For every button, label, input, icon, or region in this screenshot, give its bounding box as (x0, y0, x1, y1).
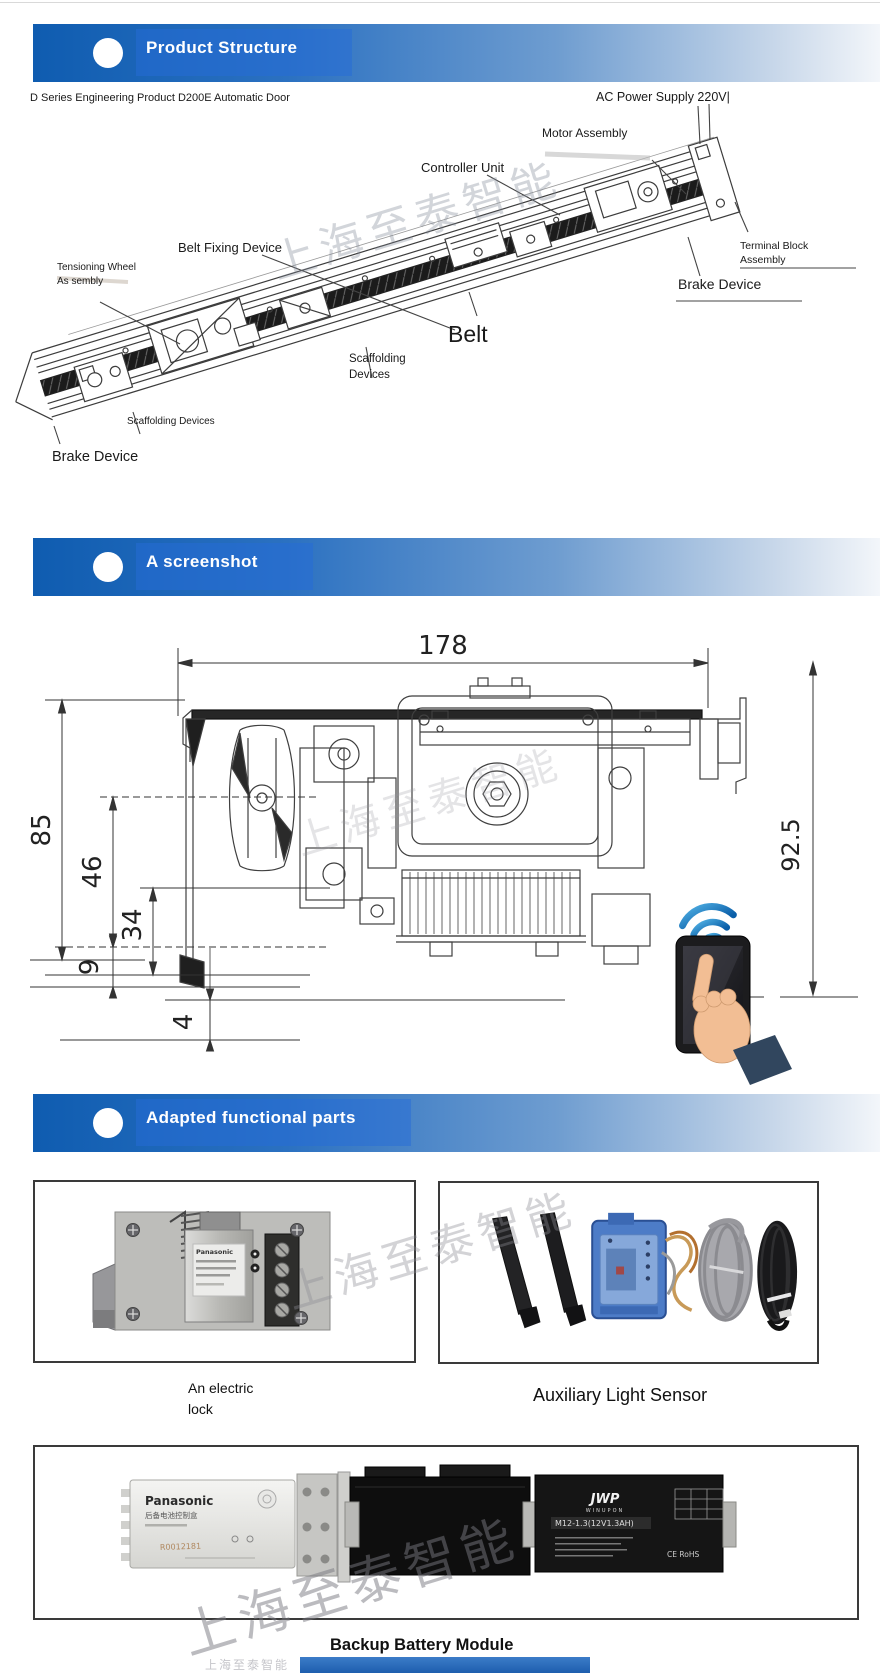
section-title: Product Structure (136, 29, 352, 76)
top-divider (0, 2, 880, 3)
label-terminal-block-2: Assembly (740, 254, 786, 267)
section-title: A screenshot (136, 543, 313, 590)
label-motor-assembly: Motor Assembly (542, 126, 627, 141)
section-banner-screenshot: A screenshot (33, 538, 880, 596)
lock-brand-text: Panasonic (196, 1248, 233, 1256)
caption-line: lock (188, 1399, 253, 1420)
dimension-drawing: 178 85 46 34 9 4 92.5 (0, 598, 880, 1085)
dim-4: 4 (169, 1014, 199, 1031)
electric-lock-caption: An electric lock (188, 1378, 253, 1420)
label-belt: Belt (448, 320, 488, 349)
section-banner-product-structure: Product Structure (33, 24, 880, 82)
battery-logo-sub-text: WINUPON (586, 1508, 625, 1514)
label-terminal-block: Terminal Block (740, 240, 808, 253)
dim-92-5: 92.5 (777, 818, 805, 871)
battery-cert-text: CE RoHS (667, 1550, 699, 1559)
label-controller-unit: Controller Unit (421, 160, 504, 176)
section-banner-adapted-parts: Adapted functional parts (33, 1094, 880, 1152)
dim-46: 46 (78, 855, 108, 888)
battery-logo-text: JWP (588, 1492, 620, 1507)
product-page: Product Structure D Series Engineering P… (0, 0, 880, 1673)
dim-9: 9 (75, 959, 105, 976)
dim-178: 178 (418, 631, 468, 661)
smartphone-hand-illustration (676, 936, 792, 1085)
caption-line: An electric (188, 1378, 253, 1399)
bottom-blue-bar (300, 1657, 590, 1673)
label-brake-device-left: Brake Device (52, 448, 138, 466)
label-ac-power: AC Power Supply 220V| (596, 90, 730, 106)
light-sensor-photo (440, 1183, 817, 1362)
label-tensioning-wheel: Tensioning Wheel (57, 262, 136, 275)
label-scaffolding-mid: Scaffolding (349, 352, 406, 366)
banner-dot-icon (93, 552, 123, 582)
label-scaffolding-left: Scaffolding Devices (127, 416, 215, 429)
diagram-leader-lines (54, 104, 856, 444)
battery-brand-sub-text: 后备电池控制盒 (145, 1510, 198, 1520)
door-rail-drawing (1, 136, 739, 430)
battery-module-box: Panasonic 后备电池控制盒 R0012181 (33, 1445, 859, 1620)
battery-module-caption: Backup Battery Module (330, 1636, 513, 1655)
banner-dot-icon (93, 1108, 123, 1138)
light-sensor-caption: Auxiliary Light Sensor (533, 1385, 707, 1406)
label-scaffolding-mid-2: Devices (349, 368, 390, 382)
label-tensioning-wheel-2: As sembly (57, 276, 103, 289)
light-sensor-box (438, 1181, 819, 1364)
electric-lock-photo: Panasonic (35, 1182, 414, 1361)
banner-dot-icon (93, 38, 123, 68)
battery-model-text: M12-1.3(12V1.3AH) (555, 1519, 634, 1528)
dim-85: 85 (27, 813, 57, 846)
label-belt-fixing-device: Belt Fixing Device (178, 240, 282, 256)
label-brake-device-right: Brake Device (678, 276, 761, 294)
battery-brand-text: Panasonic (145, 1494, 213, 1508)
battery-stamp-text: R0012181 (160, 1542, 201, 1552)
battery-module-photo: Panasonic 后备电池控制盒 R0012181 (35, 1447, 857, 1618)
cross-section-drawing (180, 678, 746, 988)
section-title: Adapted functional parts (136, 1099, 411, 1146)
electric-lock-box: Panasonic (33, 1180, 416, 1363)
dim-34: 34 (118, 908, 148, 941)
watermark-footer: 上海至泰智能 (205, 1656, 289, 1673)
